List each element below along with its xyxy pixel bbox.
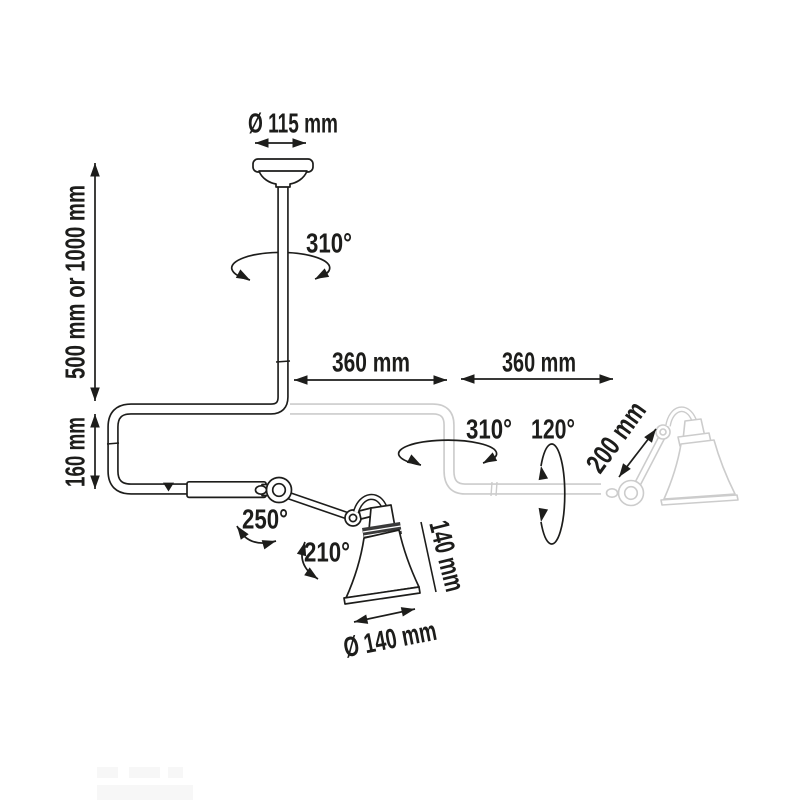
diagram-canvas: Ø 115 mm 500 mm or 1000 mm 160 mm 360 mm… [0,0,800,800]
dim-shade-height: 140 mm [421,517,471,594]
dim-shade-diameter: Ø 140 mm [341,604,439,663]
dim-drop-length: 500 mm or 1000 mm [60,163,100,401]
ghost-shade [661,440,738,505]
frame-tube [107,185,290,497]
lamp-shade [344,530,420,604]
elbow-rotation-label: 250° [242,504,288,535]
dim-bar-segment-2: 360 mm [461,347,613,384]
bar-rotation-label: 310° [466,414,512,445]
shade-height-label: 140 mm [423,517,470,594]
dim-elbow-drop: 160 mm [60,414,100,489]
lamp-dimension-diagram: Ø 115 mm 500 mm or 1000 mm 160 mm 360 mm… [0,0,800,800]
dim-bar-segment-1: 360 mm [294,347,447,385]
bar-segment-1-label: 360 mm [332,347,410,378]
clamp-sleeve [187,482,266,498]
bar-segment-2-label: 360 mm [502,347,576,378]
arm-length-label: 200 mm [580,396,652,479]
canopy-diameter-label: Ø 115 mm [248,108,338,139]
shade-joint-rotation-label: 210° [304,537,350,568]
elbow-drop-label: 160 mm [60,417,91,487]
drop-length-label: 500 mm or 1000 mm [60,185,91,379]
watermark [97,767,193,800]
ceiling-canopy [253,159,313,187]
stem-rotation-label: 310° [306,228,352,259]
dim-canopy-diameter: Ø 115 mm [248,108,338,148]
arm-swivel-label: 120° [531,414,575,445]
